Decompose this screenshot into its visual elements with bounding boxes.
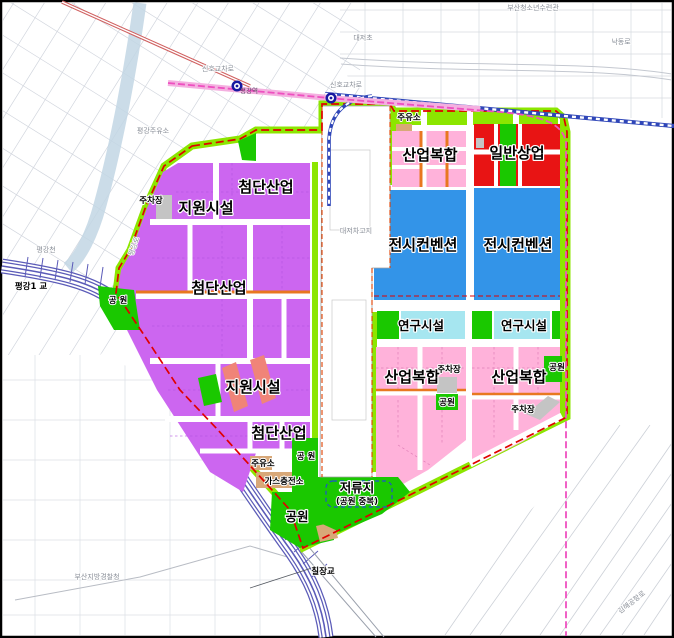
busan-youth-center-label: 부산청소년수련관 — [507, 3, 559, 12]
gas-station-top-label: 주유소 — [397, 113, 421, 123]
interchange-icon-right — [326, 93, 337, 104]
daejeo-depot-label: 대저차고지 — [340, 226, 372, 235]
nakdong-ro-label: 낙동로 — [611, 37, 631, 46]
hightech-bottom-label: 첨단산업 — [251, 424, 306, 442]
research-right-label: 연구시설 — [501, 318, 547, 333]
parking-nw-label: 주차장 — [139, 195, 163, 206]
bridge-chiljang-label: 칠장교 — [311, 566, 335, 577]
industrial-bottom-right-label: 산업복합 — [491, 368, 546, 386]
pyeonggang-gas-station-label: 평강주유소 — [137, 126, 170, 135]
parking-center-left-label: 주차장 — [437, 364, 461, 375]
hightech-top-label: 첨단산업 — [238, 178, 293, 196]
convention-right-label: 전시컨벤션 — [483, 236, 552, 254]
buffer-west-of-depot — [312, 162, 318, 453]
support-mid-label: 지원시설 — [225, 378, 280, 396]
gas-charging-station-label: 가스충전소 — [264, 476, 303, 487]
research-left-label: 연구시설 — [398, 318, 444, 333]
pyeonggang-stream-label: 평강천 — [36, 245, 55, 254]
pyeonggang-station-label: 평강역 — [240, 86, 258, 95]
support-nw-label: 지원시설 — [178, 199, 233, 217]
signal-crossing-left-label: 신호교차로 — [202, 64, 235, 73]
parking-center-right-label: 주차장 — [511, 404, 535, 415]
signal-crossing-right-label: 신호교차로 — [330, 80, 363, 89]
busan-police-label: 부산지방경찰청 — [74, 572, 119, 581]
park-center-right-label: 공원 — [549, 362, 565, 373]
industrial-top-label: 산업복합 — [402, 146, 457, 164]
retention-basin-label: 저류지 — [340, 480, 375, 495]
park-south-label: 공원 — [285, 509, 308, 524]
park-center-left-label: 공원 — [439, 397, 455, 408]
park-west-label: 공 원 — [109, 295, 128, 306]
convention-left-label: 전시컨벤션 — [388, 236, 457, 254]
bridge-pyeonggang1-label: 평강1 교 — [15, 281, 48, 292]
retention-sub-label: (공원 중복) — [336, 496, 378, 507]
commercial-general-label: 일반상업 — [489, 144, 544, 162]
land-use-plan-map: 부산청소년수련관대저초낙동로신호교차로신호교차로평강역평강주유소평강천평강로대저… — [0, 0, 674, 638]
hightech-mid-label: 첨단산업 — [191, 279, 246, 297]
gas-station-west-label: 주유소 — [251, 459, 275, 469]
daejeo-elementary-label: 대저초 — [353, 33, 373, 42]
park-mid-small-label: 공 원 — [297, 451, 316, 462]
park-left-of-depot — [292, 438, 318, 502]
industrial-bottom-left-label: 산업복합 — [384, 368, 439, 386]
plan-map-stage: 부산청소년수련관대저초낙동로신호교차로신호교차로평강역평강주유소평강천평강로대저… — [0, 0, 674, 638]
